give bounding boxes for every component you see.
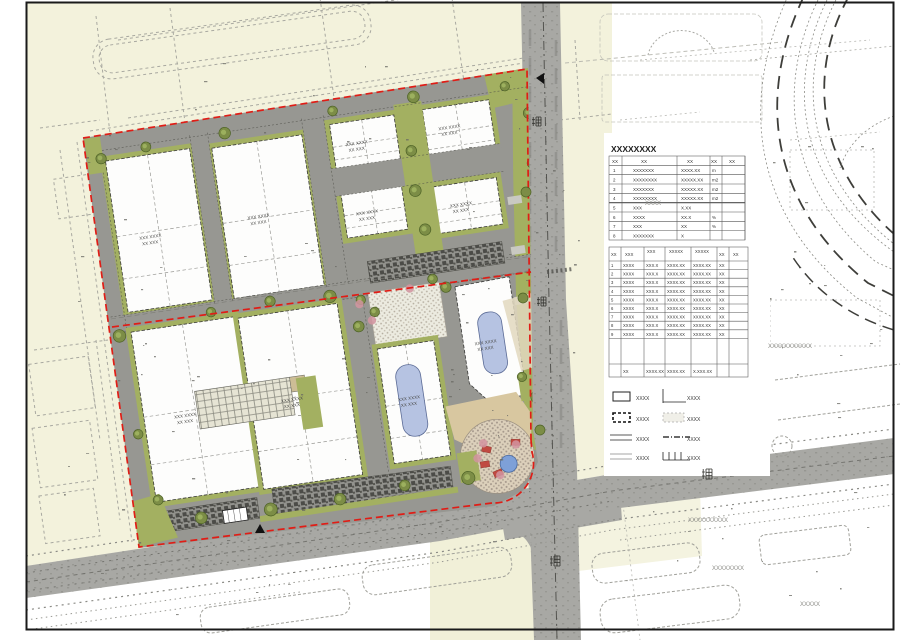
svg-text:XX: XX: [719, 289, 725, 294]
svg-text:XXXXX.XX: XXXXX.XX: [681, 178, 703, 183]
svg-text:XXXXXXXX: XXXXXXXX: [611, 144, 657, 154]
svg-text:XXXX: XXXX: [636, 417, 650, 423]
svg-text:XX: XX: [729, 159, 735, 164]
svg-text:XXXX: XXXX: [636, 456, 650, 462]
svg-text:XXXXX: XXXXX: [669, 249, 683, 254]
svg-text:XXXX: XXXX: [636, 437, 650, 443]
svg-text:%: %: [712, 224, 716, 229]
svg-text:XX: XX: [719, 332, 725, 337]
svg-text:XXXX.XX: XXXX.XX: [693, 306, 711, 311]
svg-text:XXX.X: XXX.X: [646, 315, 659, 320]
svg-text:XXXX: XXXX: [623, 297, 634, 302]
svg-text:XX: XX: [687, 159, 693, 164]
svg-text:%: %: [712, 215, 716, 220]
svg-text:XXX.X: XXX.X: [646, 280, 659, 285]
svg-text:XXXX: XXXX: [687, 396, 701, 402]
svg-text:XXXXX.XX: XXXXX.XX: [681, 196, 703, 201]
svg-text:XXXXXXX: XXXXXXX: [633, 187, 654, 192]
svg-text:XXXXXXX: XXXXXXX: [633, 233, 654, 238]
svg-text:XX: XX: [719, 252, 725, 257]
svg-text:XXX.X: XXX.X: [646, 306, 659, 311]
svg-text:m2: m2: [712, 178, 719, 183]
svg-text:m2: m2: [712, 187, 719, 192]
svg-text:XX: XX: [719, 323, 725, 328]
svg-text:XXXX: XXXX: [633, 215, 645, 220]
svg-text:X.XXX.XX: X.XXX.XX: [693, 369, 712, 374]
svg-text:XXXX.XX: XXXX.XX: [667, 369, 685, 374]
svg-text:XXXX.XX: XXXX.XX: [646, 369, 664, 374]
svg-text:XXXXX: XXXXX: [695, 249, 709, 254]
svg-text:XXXXXXXX: XXXXXXXX: [633, 178, 657, 183]
svg-text:XXXX.XX: XXXX.XX: [693, 332, 711, 337]
svg-text:XXXX.XX: XXXX.XX: [693, 323, 711, 328]
svg-text:XX: XX: [611, 252, 617, 257]
svg-text:XXXX.XX: XXXX.XX: [667, 323, 685, 328]
svg-text:XXXX: XXXX: [623, 289, 634, 294]
svg-text:XXXXXXX: XXXXXXX: [633, 168, 654, 173]
svg-text:XXXX: XXXX: [636, 396, 650, 402]
svg-text:XXXX: XXXX: [623, 306, 634, 311]
svg-text:XXXXX.XX: XXXXX.XX: [681, 187, 703, 192]
svg-text:XX: XX: [623, 369, 629, 374]
svg-text:XX: XX: [719, 297, 725, 302]
svg-text:XX: XX: [733, 252, 739, 257]
svg-text:XXX.X: XXX.X: [646, 272, 659, 277]
svg-text:XXX.X: XXX.X: [646, 297, 659, 302]
svg-text:XXXX.XX: XXXX.XX: [693, 315, 711, 320]
svg-text:m: m: [712, 168, 716, 173]
svg-text:XXX.X: XXX.X: [646, 263, 659, 268]
svg-text:XXXX: XXXX: [687, 417, 701, 423]
svg-text:XXX.X: XXX.X: [646, 323, 659, 328]
svg-text:XXX.X: XXX.X: [646, 332, 659, 337]
svg-text:XXX: XXX: [633, 206, 642, 211]
svg-text:XXXX: XXXX: [623, 315, 634, 320]
svg-text:XXXX: XXXX: [623, 272, 634, 277]
svg-text:XX: XX: [719, 280, 725, 285]
svg-text:XX.X: XX.X: [681, 215, 691, 220]
svg-text:XXXX: XXXX: [623, 280, 634, 285]
svg-text:XXXX.XX: XXXX.XX: [693, 272, 711, 277]
svg-text:XXXX: XXXX: [645, 201, 661, 207]
svg-text:XXXX.XX: XXXX.XX: [681, 168, 700, 173]
svg-text:XXXX: XXXX: [623, 323, 634, 328]
svg-text:XXXXXXXXXXX: XXXXXXXXXXX: [768, 344, 812, 350]
svg-text:XXXX.XX: XXXX.XX: [667, 315, 685, 320]
svg-text:XXX: XXX: [625, 252, 634, 257]
svg-text:XXXX.XX: XXXX.XX: [667, 332, 685, 337]
svg-text:XXXX.XX: XXXX.XX: [667, 289, 685, 294]
svg-text:XXXXXXXX: XXXXXXXX: [712, 566, 744, 572]
svg-text:XXXXX: XXXXX: [800, 602, 820, 608]
svg-text:XXXX: XXXX: [687, 456, 701, 462]
svg-text:XXXX: XXXX: [623, 263, 634, 268]
svg-text:XXXX.XX: XXXX.XX: [667, 272, 685, 277]
svg-text:XXXX.XX: XXXX.XX: [667, 306, 685, 311]
svg-text:XX: XX: [711, 159, 717, 164]
svg-text:X.XX: X.XX: [681, 206, 691, 211]
svg-text:XXX: XXX: [647, 249, 656, 254]
svg-text:XXXX.XX: XXXX.XX: [693, 289, 711, 294]
svg-text:m2: m2: [712, 196, 719, 201]
svg-text:XXXX: XXXX: [687, 437, 701, 443]
svg-text:XXX.X: XXX.X: [646, 289, 659, 294]
svg-text:XXXX.XX: XXXX.XX: [693, 263, 711, 268]
svg-text:XXXX.XX: XXXX.XX: [667, 263, 685, 268]
svg-text:XXXX.XX: XXXX.XX: [693, 297, 711, 302]
svg-text:XX: XX: [719, 272, 725, 277]
svg-text:XXXXXXXXXX: XXXXXXXXXX: [688, 518, 728, 524]
svg-text:XX: XX: [612, 159, 618, 164]
svg-text:XXXX.XX: XXXX.XX: [667, 280, 685, 285]
svg-text:XX: XX: [719, 306, 725, 311]
svg-text:XX: XX: [719, 263, 725, 268]
svg-text:X: X: [681, 233, 684, 238]
svg-text:XXX: XXX: [633, 224, 642, 229]
svg-text:XX: XX: [681, 224, 687, 229]
svg-text:XXXX.XX: XXXX.XX: [667, 297, 685, 302]
svg-text:XX: XX: [719, 315, 725, 320]
svg-text:XXXX.XX: XXXX.XX: [693, 280, 711, 285]
svg-text:XX: XX: [641, 159, 647, 164]
svg-text:XXXX: XXXX: [623, 332, 634, 337]
